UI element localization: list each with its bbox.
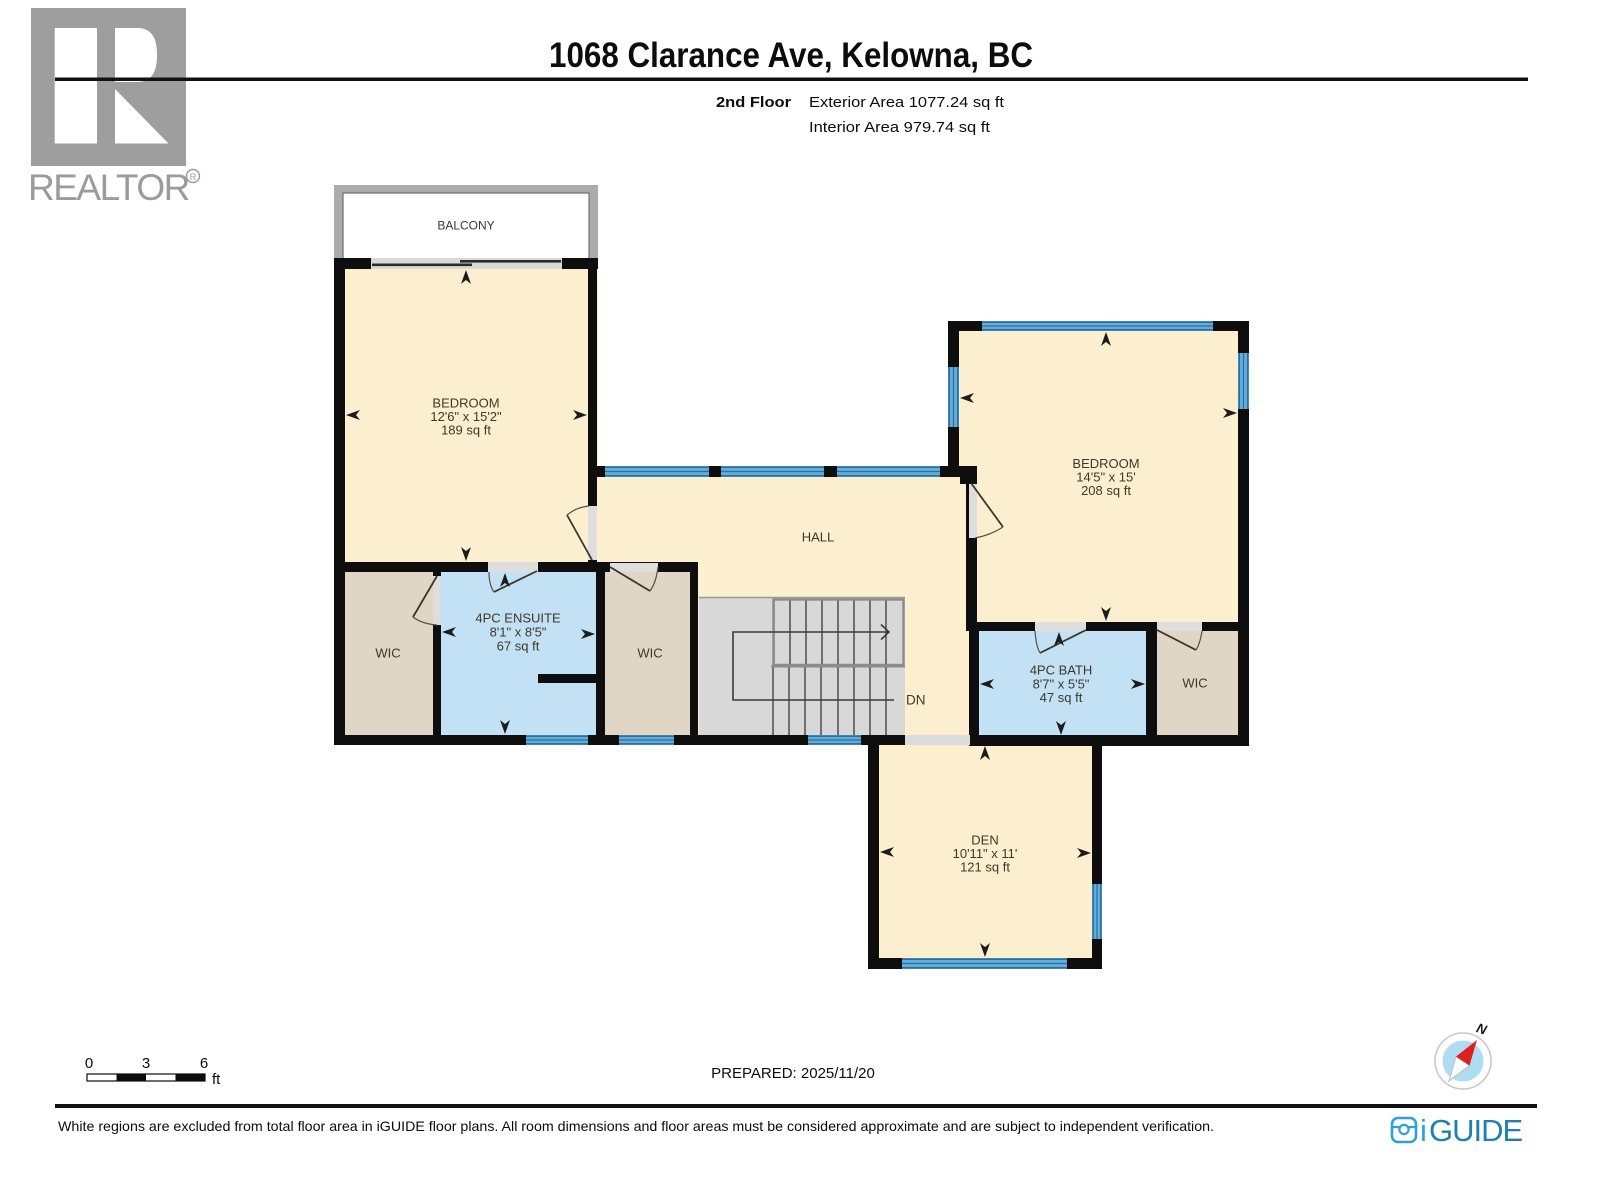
svg-text:WIC: WIC bbox=[637, 646, 662, 661]
svg-text:3: 3 bbox=[142, 1055, 150, 1072]
svg-text:PREPARED: 2025/11/20: PREPARED: 2025/11/20 bbox=[711, 1065, 875, 1082]
svg-text:R: R bbox=[190, 172, 197, 182]
svg-text:BALCONY: BALCONY bbox=[437, 219, 494, 233]
svg-text:Exterior Area 1077.24 sq ft: Exterior Area 1077.24 sq ft bbox=[809, 95, 1004, 111]
svg-text:DN: DN bbox=[906, 693, 926, 708]
svg-text:HALL: HALL bbox=[802, 530, 835, 545]
svg-text:WIC: WIC bbox=[1182, 676, 1207, 691]
svg-text:WIC: WIC bbox=[375, 646, 400, 661]
svg-text:ft: ft bbox=[212, 1071, 221, 1088]
svg-text:4PC BATH: 4PC BATH bbox=[1030, 663, 1093, 678]
svg-text:Interior Area 979.74 sq ft: Interior Area 979.74 sq ft bbox=[809, 120, 990, 136]
svg-text:White regions are excluded fro: White regions are excluded from total fl… bbox=[58, 1118, 1214, 1134]
svg-text:8'1" x 8'5": 8'1" x 8'5" bbox=[490, 625, 547, 640]
svg-text:189 sq ft: 189 sq ft bbox=[441, 423, 491, 438]
svg-text:GUIDE: GUIDE bbox=[1429, 1113, 1523, 1148]
svg-text:121 sq ft: 121 sq ft bbox=[960, 860, 1010, 875]
svg-text:0: 0 bbox=[85, 1055, 93, 1072]
svg-text:REALTOR: REALTOR bbox=[28, 167, 189, 208]
svg-text:47 sq ft: 47 sq ft bbox=[1040, 690, 1083, 705]
svg-text:1068 Clarance Ave, Kelowna, BC: 1068 Clarance Ave, Kelowna, BC bbox=[549, 36, 1033, 75]
svg-text:208 sq ft: 208 sq ft bbox=[1081, 483, 1131, 498]
svg-text:2nd Floor: 2nd Floor bbox=[716, 95, 791, 111]
svg-text:4PC ENSUITE: 4PC ENSUITE bbox=[475, 611, 561, 626]
svg-text:67 sq ft: 67 sq ft bbox=[497, 639, 540, 654]
svg-text:6: 6 bbox=[200, 1055, 208, 1072]
svg-text:i: i bbox=[1420, 1113, 1427, 1148]
